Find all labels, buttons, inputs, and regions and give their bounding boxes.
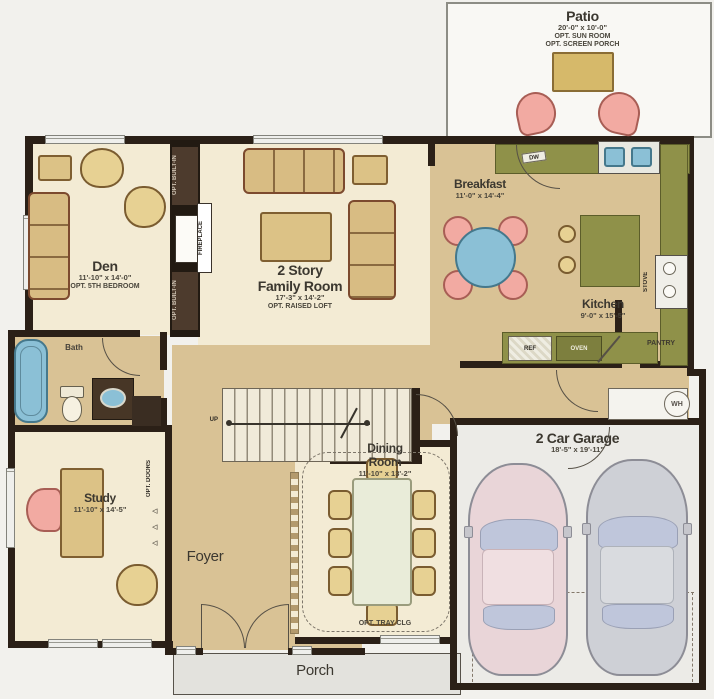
dining-chair-l1 [328,490,352,520]
oven: OVEN [556,336,602,361]
car-2-roof [600,546,674,604]
dining-opt-block: OPT. TRAY CLG [320,620,450,628]
den-chair-top [80,148,124,188]
island-stool-2 [558,256,576,274]
sink-basin-right [631,147,652,167]
dining-label-block: Dining Room 11'-10" x 13'-2" [330,442,440,478]
wall-study-right [165,428,172,648]
stairs-line-dot-2 [364,420,370,426]
water-heater-label: WH [671,401,683,408]
bath-sink [100,388,126,408]
dining-dims: 11'-10" x 13'-2" [330,470,440,479]
wall-family-breakfast-stub [428,136,435,166]
kitchen-name: Kitchen [548,298,658,312]
patio-opt1: OPT. SUN ROOM [470,33,695,41]
bathtub-inner [20,346,42,416]
breakfast-dims: 11'-0" x 14'-4" [425,192,535,201]
car-2-rear-window [602,604,675,629]
kitchen-island [580,215,640,287]
french-door-symbol-2: ◃ [152,522,158,533]
window-study-bottom-1 [48,639,98,648]
family-name-line2: Family Room [225,278,375,294]
window-foyer-right [292,646,312,655]
builtin-top-label: OPT. BUILT-IN [172,147,198,205]
family-coffee-table [260,212,332,262]
wall-garage-left [450,418,457,690]
wall-bath-bottom [8,425,172,432]
window-dining-bottom [380,635,440,644]
den-opt: OPT. 5TH BEDROOM [40,283,170,291]
stairs-line-dot-1 [226,420,232,426]
den-name: Den [40,258,170,274]
dining-chair-r2 [412,528,436,558]
stairs-up-label: UP [200,417,218,423]
window-foyer-left [176,646,196,655]
car-1-mirror-right [563,526,572,538]
patio-name: Patio [470,8,695,24]
sink-basin-left [604,147,625,167]
patio-opt2: OPT. SCREEN PORCH [470,41,695,49]
car-1-rear-window [483,605,554,630]
car-1 [468,463,568,676]
wall-den-bottom [25,330,140,337]
study-name: Study [45,492,155,506]
window-study-bottom-2 [102,639,152,648]
linen-closet [132,396,161,426]
study-dims: 11'-10" x 14'-5" [45,506,155,515]
patio-table [552,52,614,92]
patio-dims: 20'-0" x 10'-0" [470,24,695,33]
toilet-bowl [62,396,82,422]
kitchen-dims: 9'-0" x 15'-5" [548,312,658,321]
wall-bath-right-lower [160,398,167,428]
family-dims: 17'-3" x 14'-2" [225,294,375,303]
dining-chair-l3 [328,566,352,596]
den-side-table [38,155,72,181]
dining-name-line2: Room [330,456,440,470]
garage-dash-right [692,592,693,682]
family-name-line1: 2 Story [225,262,375,278]
garage-dims: 18'-5" x 19'-11" [490,446,665,455]
pantry-label: PANTRY [636,340,686,352]
den-dims: 11'-10" x 14'-0" [40,274,170,283]
car-2-mirror-left [582,523,591,535]
bath-label: Bath [52,343,96,352]
dining-opt: OPT. TRAY CLG [320,620,450,628]
stove-burner-1 [663,262,676,275]
family-side-table [352,155,388,185]
dining-chair-l2 [328,528,352,558]
wall-garage-bottom [450,683,706,690]
car-2-mirror-right [683,523,692,535]
dining-chair-r1 [412,490,436,520]
dining-table [352,478,412,606]
breakfast-table [455,227,516,288]
den-chair-right [124,186,166,228]
patio-label-block: Patio 20'-0" x 10'-0" OPT. SUN ROOM OPT.… [470,8,695,49]
dining-chair-r3 [412,566,436,596]
porch-name: Porch [240,662,390,679]
firebox [175,215,199,263]
study-label-block: Study 11'-10" x 14'-5" [45,492,155,514]
foyer-label-block: Foyer [150,548,260,565]
fireplace-label: FIREPLACE [197,203,212,273]
window-family-top [253,135,383,144]
garage-name: 2 Car Garage [490,430,665,446]
refrigerator: REF [508,336,552,361]
car-2 [586,459,688,676]
window-study-left [6,468,15,548]
car-1-windshield [480,519,559,552]
builtin-bottom-label: OPT. BUILT-IN [172,272,198,330]
island-stool-1 [558,225,576,243]
den-label-block: Den 11'-10" x 14'-0" OPT. 5TH BEDROOM [40,258,170,291]
foyer-name: Foyer [150,548,260,565]
family-label-block: 2 Story Family Room 17'-3" x 14'-2" OPT.… [225,262,375,311]
breakfast-name: Breakfast [425,178,535,192]
kitchen-label-block: Kitchen 9'-0" x 15'-5" [548,298,658,320]
study-corner-chair [116,564,158,606]
wall-bath-right-upper [160,332,167,370]
family-sofa-top [243,148,345,194]
dining-colonnade [290,472,299,634]
garage-label-block: 2 Car Garage 18'-5" x 19'-11" [490,430,665,455]
window-den-top [45,135,125,144]
dining-name-line1: Dining [330,442,440,456]
family-opt: OPT. RAISED LOFT [225,303,375,311]
car-1-roof [482,549,555,605]
stove-burner-2 [663,285,676,298]
porch-label-block: Porch [240,662,390,679]
water-heater: WH [664,391,690,417]
breakfast-label-block: Breakfast 11'-0" x 14'-4" [425,178,535,200]
car-1-mirror-left [464,526,473,538]
